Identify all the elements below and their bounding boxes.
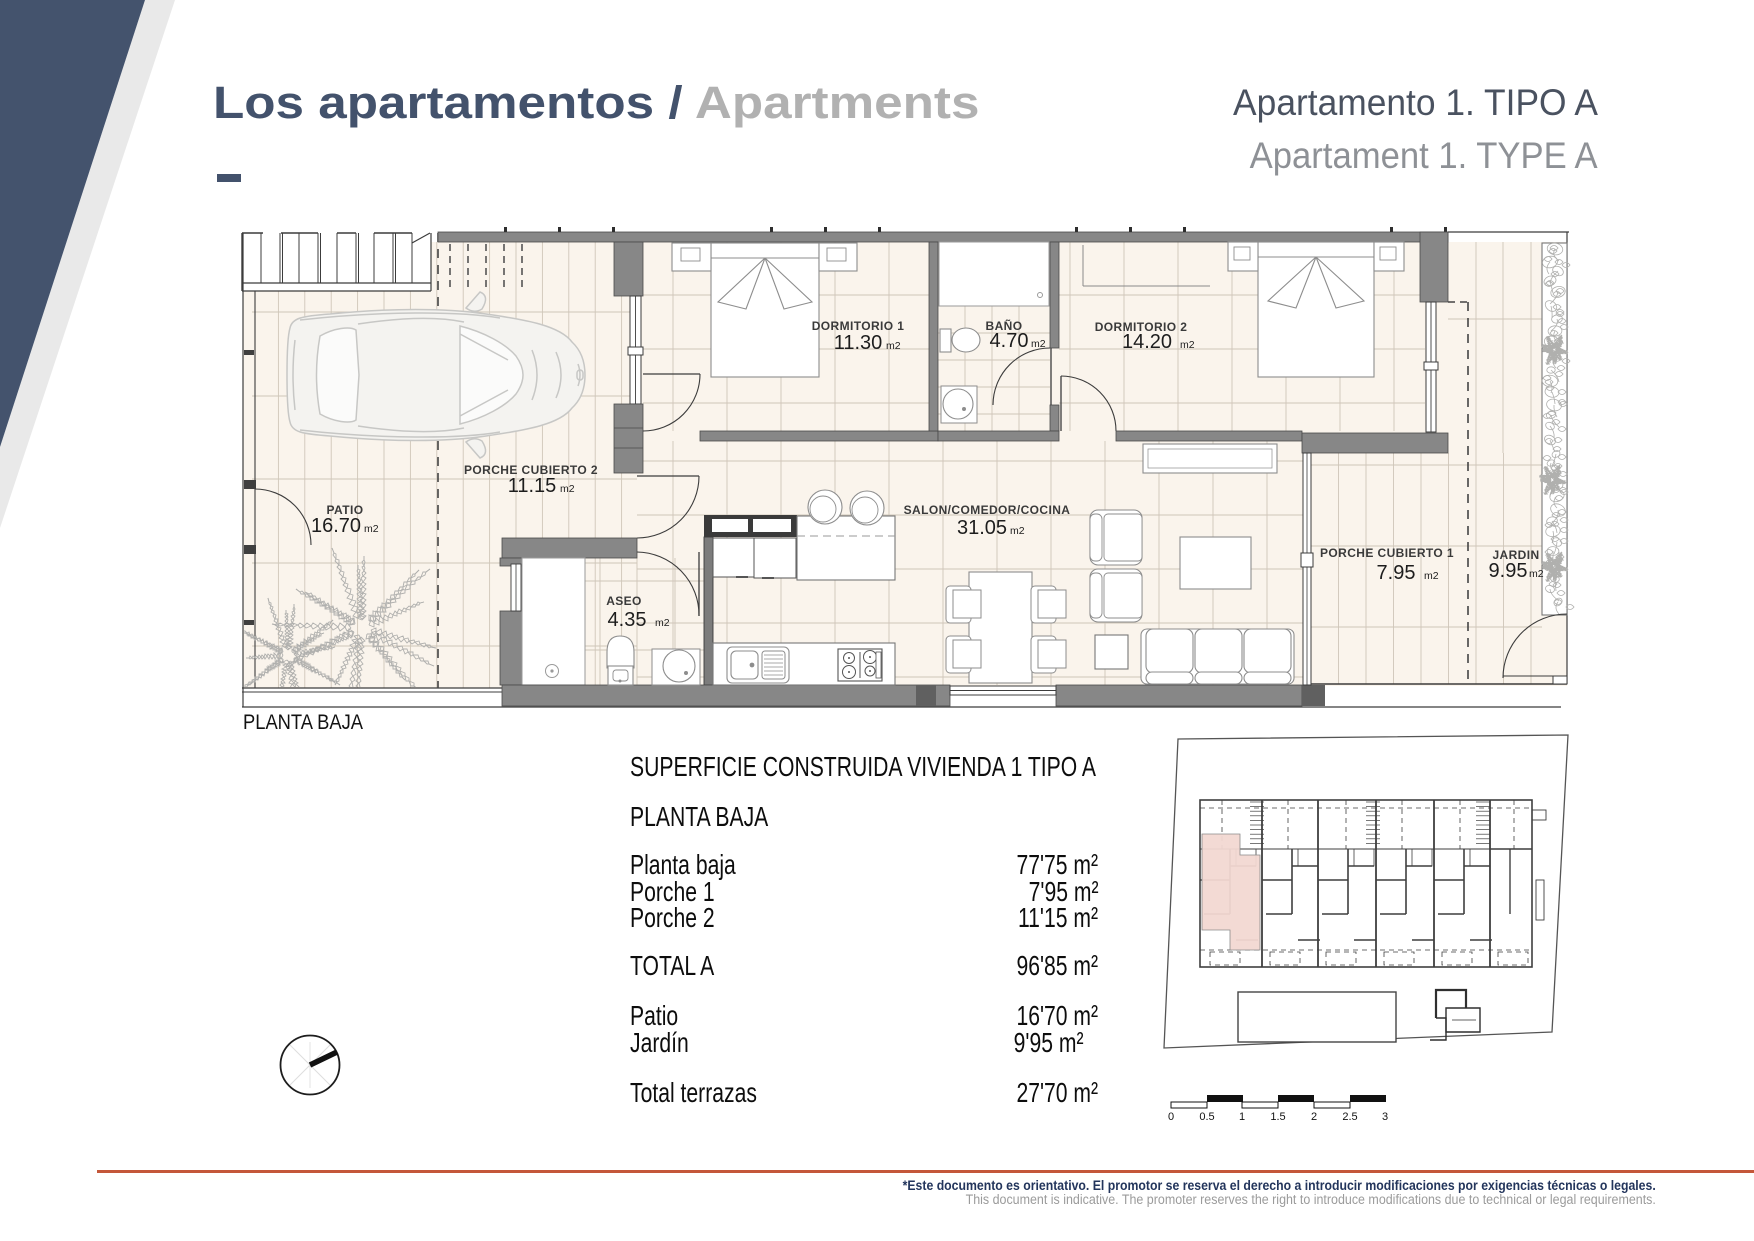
svg-text:9.95: 9.95 bbox=[1489, 560, 1528, 582]
svg-text:1.5: 1.5 bbox=[1270, 1111, 1285, 1123]
svg-text:0: 0 bbox=[1168, 1111, 1174, 1123]
svg-text:m2: m2 bbox=[655, 617, 670, 629]
svg-text:m2: m2 bbox=[1180, 339, 1195, 351]
svg-text:4.70: 4.70 bbox=[990, 330, 1029, 352]
svg-text:3: 3 bbox=[1382, 1111, 1388, 1123]
svg-text:m2: m2 bbox=[1529, 568, 1544, 580]
svg-text:2.5: 2.5 bbox=[1342, 1111, 1357, 1123]
svg-text:m2: m2 bbox=[1031, 338, 1046, 350]
svg-text:m2: m2 bbox=[364, 523, 379, 535]
svg-text:14.20: 14.20 bbox=[1122, 331, 1172, 353]
svg-text:m2: m2 bbox=[1424, 570, 1439, 582]
svg-text:DORMITORIO 1: DORMITORIO 1 bbox=[812, 319, 905, 333]
svg-text:0.5: 0.5 bbox=[1199, 1111, 1214, 1123]
svg-text:2: 2 bbox=[1311, 1111, 1317, 1123]
svg-text:PLANTA BAJA: PLANTA BAJA bbox=[243, 710, 364, 734]
svg-text:1: 1 bbox=[1239, 1111, 1245, 1123]
svg-text:4.35: 4.35 bbox=[608, 609, 647, 631]
svg-text:7.95: 7.95 bbox=[1377, 562, 1416, 584]
svg-text:m2: m2 bbox=[1010, 525, 1025, 537]
svg-text:31.05: 31.05 bbox=[957, 517, 1007, 539]
svg-text:ASEO: ASEO bbox=[606, 594, 642, 608]
svg-text:PORCHE CUBIERTO 1: PORCHE CUBIERTO 1 bbox=[1320, 546, 1454, 560]
svg-text:m2: m2 bbox=[560, 483, 575, 495]
svg-text:11.15: 11.15 bbox=[508, 475, 557, 497]
svg-text:16.70: 16.70 bbox=[311, 515, 361, 537]
svg-text:m2: m2 bbox=[886, 340, 901, 352]
svg-text:SALON/COMEDOR/COCINA: SALON/COMEDOR/COCINA bbox=[904, 503, 1071, 517]
svg-text:11.30: 11.30 bbox=[834, 332, 883, 354]
